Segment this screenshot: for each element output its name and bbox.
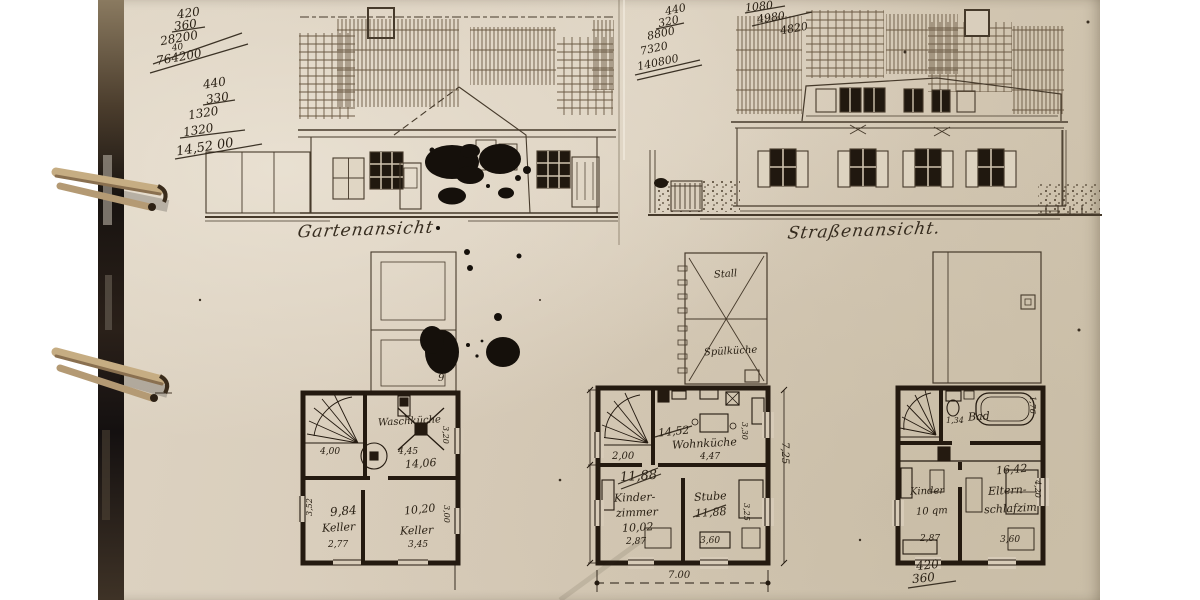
dim-label: 4,47: [700, 453, 720, 462]
dim-label: 2,00: [612, 452, 634, 462]
room-label-keller: Keller: [400, 524, 434, 536]
calc-line: 440: [202, 75, 227, 90]
area-label: 14,06: [405, 457, 437, 470]
street-elevation-drawing: [648, 10, 1102, 219]
garden-elevation-caption: Gartenansicht: [296, 220, 434, 242]
dim-label: 3,20: [441, 426, 449, 444]
dim-label: 1,76: [1028, 396, 1036, 414]
area-label: 9,84: [330, 504, 358, 518]
dim-label: 2,77: [328, 541, 348, 550]
garden-elevation-drawing: [205, 8, 618, 221]
dim-label: 3,45: [408, 541, 428, 550]
annex-note: 9: [438, 374, 444, 384]
room-label-stall: Stall: [714, 269, 738, 281]
area-label: 10 qm: [916, 506, 948, 518]
dim-label: 3,60: [1000, 536, 1020, 545]
dim-label: 4,20: [1033, 480, 1041, 498]
calc-line: 360: [911, 571, 935, 585]
area-label: 11,88: [695, 506, 727, 519]
room-label-wohnkueche: Wohnküche: [672, 436, 737, 450]
room-label-bad: Bad: [968, 410, 990, 422]
crossed-area-label: 11,88: [620, 469, 658, 485]
dim-label: 3,25: [742, 503, 750, 521]
dim-label: 4,45: [398, 448, 418, 457]
dim-label: 3,60: [700, 537, 720, 546]
dim-label: 1,34: [946, 417, 964, 425]
room-label-eltern: schlafzim: [984, 502, 1037, 516]
photo-of-architectural-drawing: 420 360 28200 40 764200 440 330 1320 132…: [0, 0, 1200, 600]
dim-label: 3,00: [442, 505, 450, 523]
overall-dim-label: 7.00: [668, 571, 690, 581]
room-label-kinder: Kinder: [910, 486, 945, 497]
binder-spine: [98, 0, 124, 600]
ink-blots: [425, 144, 531, 205]
room-label-eltern: Eltern-: [988, 484, 1027, 497]
dim-label: 3,52: [306, 498, 314, 516]
room-label-keller: Keller: [322, 521, 356, 534]
room-label-kinderzimmer: zimmer: [616, 506, 658, 518]
area-label: 14,52: [658, 424, 690, 438]
area-label: 10,02: [622, 521, 654, 534]
area-label: 16,42: [996, 463, 1028, 477]
room-label-stube: Stube: [694, 490, 727, 503]
dim-label: 2,87: [920, 535, 940, 544]
dim-label: 4,00: [320, 448, 340, 457]
room-label-kinderzimmer: Kinder-: [614, 491, 656, 503]
area-label: 10,20: [404, 502, 436, 516]
overall-dim-label: 7,25: [779, 442, 789, 464]
dim-label: 2,87: [626, 538, 646, 547]
dim-label: 3,30: [740, 422, 748, 440]
